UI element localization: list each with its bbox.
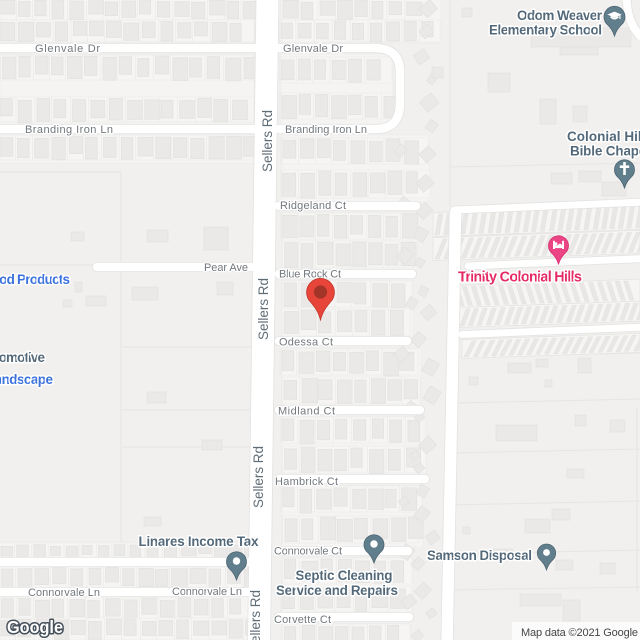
- svg-text:Colonial Hills: Colonial Hills: [567, 129, 640, 144]
- svg-text:Trinity Colonial Hills: Trinity Colonial Hills: [458, 270, 582, 286]
- svg-text:Linares Income Tax: Linares Income Tax: [139, 534, 259, 549]
- svg-text:Glenvale Dr: Glenvale Dr: [283, 43, 343, 55]
- svg-text:Pear Ave: Pear Ave: [204, 262, 248, 274]
- svg-text:Wood Products: Wood Products: [0, 272, 70, 287]
- svg-text:Odessa Ct: Odessa Ct: [279, 337, 333, 349]
- svg-text:Septic Cleaning: Septic Cleaning: [296, 568, 393, 583]
- svg-text:Automotive: Automotive: [0, 350, 45, 365]
- svg-text:Bible Chapel: Bible Chapel: [570, 144, 640, 159]
- svg-text:Samson Disposal: Samson Disposal: [427, 548, 532, 563]
- svg-text:Connorvale Ct: Connorvale Ct: [274, 546, 342, 558]
- svg-text:Elementary School: Elementary School: [489, 23, 602, 38]
- svg-text:Sellers Rd: Sellers Rd: [260, 110, 275, 172]
- svg-text:Connorvale Ln: Connorvale Ln: [28, 587, 100, 599]
- svg-text:Hambrick Ct: Hambrick Ct: [275, 476, 338, 488]
- svg-text:Connorvale Ln: Connorvale Ln: [172, 586, 242, 598]
- svg-text:Sellers Rd: Sellers Rd: [256, 278, 271, 340]
- svg-text:Midland Ct: Midland Ct: [278, 406, 335, 418]
- svg-text:Odom Weaver: Odom Weaver: [517, 8, 603, 23]
- svg-text:Sellers Rd: Sellers Rd: [248, 590, 263, 640]
- svg-text:Branding Iron Ln: Branding Iron Ln: [25, 124, 113, 136]
- svg-text:Map data ©2021 Google: Map data ©2021 Google: [521, 627, 638, 639]
- svg-text:Sellers Rd: Sellers Rd: [251, 446, 266, 508]
- svg-text:Blue Rock Ct: Blue Rock Ct: [279, 269, 341, 281]
- svg-text:Service and Repairs: Service and Repairs: [276, 583, 398, 598]
- svg-text:Glenvale Dr: Glenvale Dr: [35, 43, 100, 55]
- svg-text:Landscape: Landscape: [0, 372, 53, 387]
- svg-text:Ridgeland Ct: Ridgeland Ct: [280, 200, 346, 212]
- svg-text:Branding Iron Ln: Branding Iron Ln: [285, 124, 367, 136]
- svg-text:Corvette Ct: Corvette Ct: [274, 614, 331, 626]
- svg-text:Google: Google: [7, 617, 63, 637]
